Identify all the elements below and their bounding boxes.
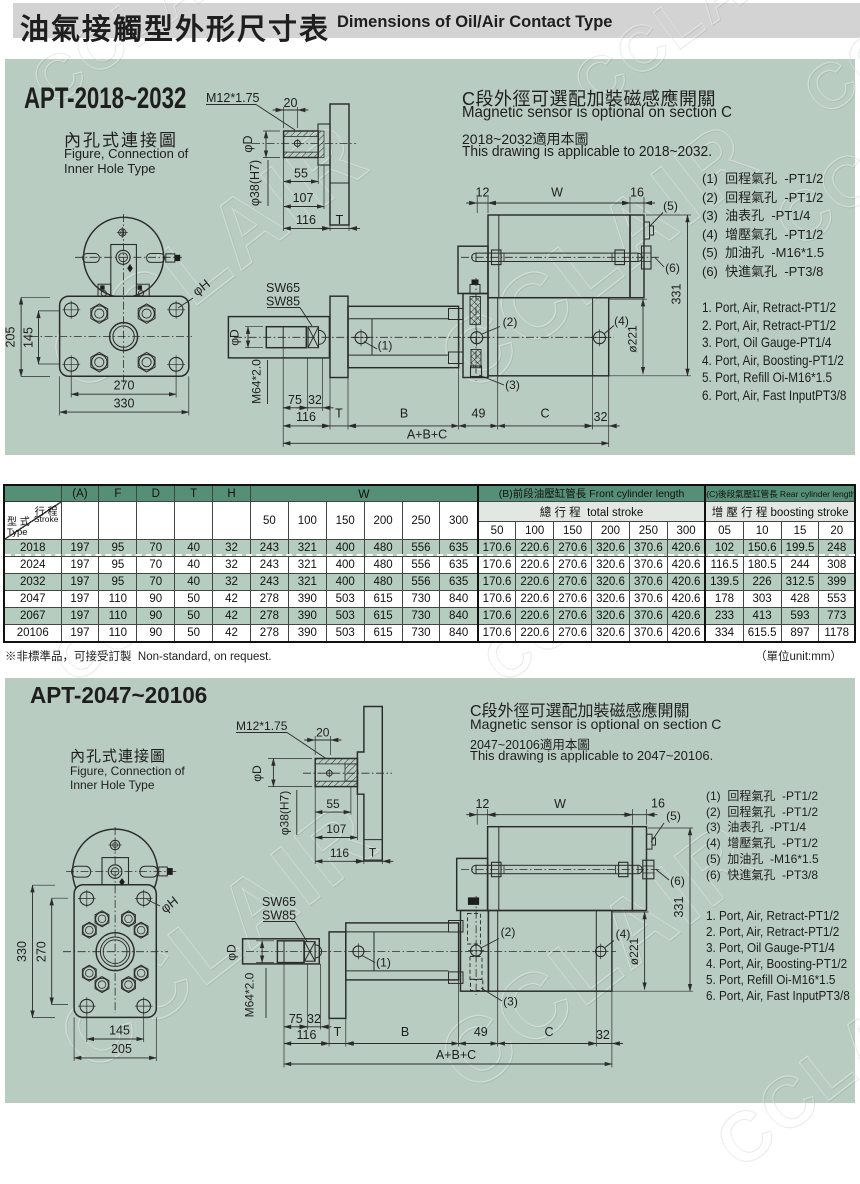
svg-text:A+B+C: A+B+C	[407, 428, 447, 442]
svg-text:(3): (3)	[503, 995, 518, 1009]
svg-text:φD: φD	[228, 329, 242, 346]
svg-text:φD: φD	[250, 765, 264, 782]
svg-text:W: W	[551, 186, 563, 200]
svg-text:SW85: SW85	[262, 909, 296, 923]
svg-text:φH: φH	[190, 276, 213, 299]
svg-text:12: 12	[475, 797, 489, 811]
svg-text:M12*1.75: M12*1.75	[206, 91, 260, 105]
svg-text:W: W	[554, 797, 566, 811]
svg-text:116: 116	[296, 213, 316, 227]
svg-text:20: 20	[316, 726, 330, 740]
svg-text:75: 75	[288, 393, 302, 407]
svg-text:331: 331	[670, 284, 684, 305]
svg-text:330: 330	[114, 397, 135, 411]
svg-text:(6): (6)	[665, 261, 680, 275]
svg-text:φD: φD	[225, 944, 239, 961]
svg-text:270: 270	[114, 379, 135, 393]
svg-text:(1): (1)	[376, 956, 391, 970]
svg-text:B: B	[400, 407, 408, 421]
svg-text:116: 116	[297, 1028, 317, 1042]
svg-text:32: 32	[596, 1028, 610, 1042]
svg-text:φ38(H7): φ38(H7)	[248, 160, 262, 206]
svg-text:205: 205	[4, 327, 18, 348]
svg-text:T: T	[336, 213, 344, 227]
svg-text:16: 16	[651, 797, 665, 811]
svg-text:75: 75	[289, 1012, 303, 1026]
svg-text:145: 145	[22, 327, 36, 348]
svg-text:(2): (2)	[501, 925, 516, 939]
svg-text:32: 32	[308, 393, 322, 407]
svg-text:C: C	[540, 407, 549, 421]
svg-text:(4): (4)	[614, 314, 629, 328]
svg-text:ø221: ø221	[627, 938, 641, 966]
svg-text:205: 205	[111, 1042, 132, 1056]
svg-text:φD: φD	[241, 135, 255, 152]
svg-text:116: 116	[296, 410, 316, 424]
svg-text:φH: φH	[158, 893, 181, 916]
svg-text:M64*2.0: M64*2.0	[243, 972, 257, 1017]
svg-text:32: 32	[594, 410, 608, 424]
svg-text:φ38(H7): φ38(H7)	[278, 791, 292, 835]
svg-text:270: 270	[35, 941, 49, 962]
svg-text:116: 116	[330, 846, 349, 860]
svg-text:107: 107	[326, 822, 346, 836]
svg-text:(2): (2)	[503, 315, 518, 329]
svg-text:T: T	[334, 1025, 342, 1039]
svg-text:145: 145	[109, 1024, 130, 1038]
svg-text:SW65: SW65	[262, 895, 296, 909]
svg-text:M12*1.75: M12*1.75	[236, 719, 288, 733]
svg-text:M64*2.0: M64*2.0	[250, 359, 264, 404]
svg-text:ø221: ø221	[626, 325, 640, 353]
svg-text:(5): (5)	[663, 199, 678, 213]
svg-text:SW85: SW85	[266, 295, 300, 309]
svg-text:330: 330	[15, 941, 29, 962]
svg-text:49: 49	[474, 1025, 488, 1039]
svg-text:(3): (3)	[505, 378, 520, 392]
svg-text:A+B+C: A+B+C	[436, 1048, 476, 1062]
svg-text:20: 20	[284, 96, 298, 110]
svg-text:(1): (1)	[378, 339, 393, 353]
svg-text:55: 55	[326, 797, 340, 811]
svg-text:49: 49	[472, 407, 486, 421]
svg-text:SW65: SW65	[266, 281, 300, 295]
svg-text:107: 107	[293, 191, 314, 205]
svg-text:T: T	[335, 407, 343, 421]
svg-text:12: 12	[476, 186, 490, 200]
svg-text:T: T	[369, 846, 377, 860]
svg-text:(5): (5)	[666, 809, 681, 823]
svg-text:(4): (4)	[616, 927, 631, 941]
svg-text:B: B	[401, 1025, 409, 1039]
svg-text:(6): (6)	[670, 874, 685, 888]
svg-text:16: 16	[630, 186, 644, 200]
svg-text:32: 32	[307, 1012, 321, 1026]
svg-text:C: C	[544, 1025, 553, 1039]
svg-text:55: 55	[294, 167, 308, 181]
svg-text:331: 331	[672, 897, 686, 918]
